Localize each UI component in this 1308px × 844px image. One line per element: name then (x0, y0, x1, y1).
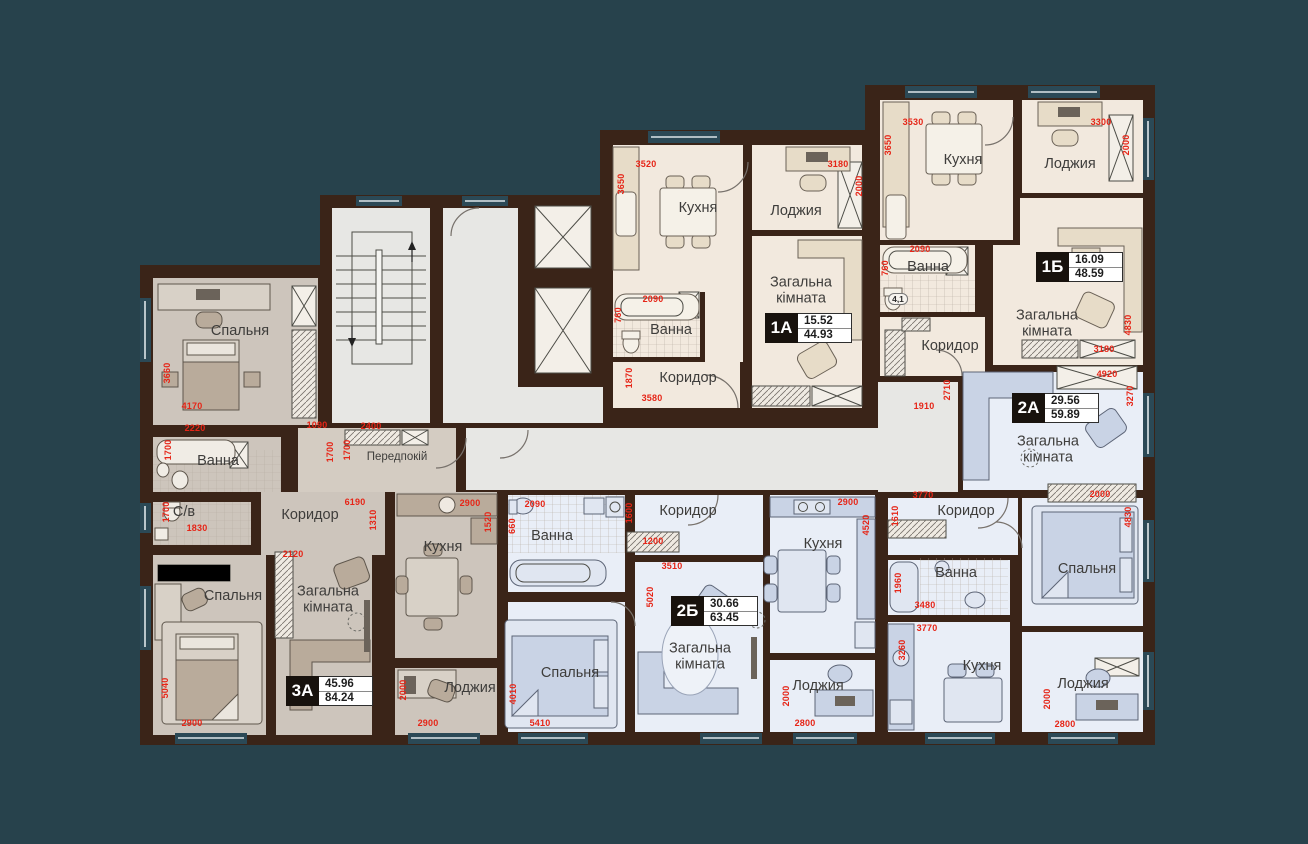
living-area: 30.66 (704, 597, 757, 612)
room-label: Кухня (963, 659, 1002, 675)
apartment-badge-2Б[interactable]: 2Б30.6663.45 (671, 596, 758, 626)
room-label: Коридор (281, 508, 338, 524)
apartment-badge-2А[interactable]: 2А29.5659.89 (1012, 393, 1099, 423)
dimension-label: 4520 (861, 515, 871, 536)
dimension-label: 3770 (917, 623, 938, 633)
dimension-label: 2000 (1042, 689, 1052, 710)
dimension-label: 3660 (162, 363, 172, 384)
room-label: Передпокій (367, 451, 428, 463)
apartment-code: 1Б (1036, 252, 1069, 282)
dimension-label: 2000 (1121, 135, 1131, 156)
room-label: Кухня (424, 540, 463, 556)
dimension-label: 1870 (624, 368, 634, 389)
room-label: Загальна кімната (297, 584, 359, 615)
apartment-areas: 30.6663.45 (704, 596, 758, 626)
dimension-label: 2900 (838, 497, 859, 507)
floor-plan: КухняЛоджияЗагальна кімнатаВаннаКоридорК… (0, 0, 1308, 844)
dimension-label: 3510 (662, 561, 683, 571)
dimension-label: 1310 (368, 510, 378, 531)
dimension-label: 1090 (307, 420, 328, 430)
dimension-label: 1700 (163, 440, 173, 461)
room-label: Лоджия (1057, 677, 1108, 693)
dimension-label: 4830 (1123, 507, 1133, 528)
room-label: Загальна кімната (1017, 434, 1079, 465)
dimension-label: 760 (613, 307, 623, 323)
dimension-label: 2220 (185, 423, 206, 433)
total-area: 59.89 (1045, 409, 1098, 423)
dimension-label: 1520 (483, 512, 493, 533)
apartment-areas: 15.5244.93 (798, 313, 852, 343)
room-label: Коридор (659, 504, 716, 520)
total-area: 44.93 (798, 329, 851, 343)
dimension-label: 1700 (325, 442, 335, 463)
dimension-label: 3180 (828, 159, 849, 169)
dimension-label: 4830 (1123, 315, 1133, 336)
dimension-label: 660 (507, 518, 517, 534)
dimension-label: 5410 (530, 718, 551, 728)
apartment-areas: 16.0948.59 (1069, 252, 1123, 282)
room-label: Спальня (211, 324, 269, 340)
dimension-label: 5020 (645, 587, 655, 608)
dimension-label: 1600 (624, 503, 634, 524)
dimension-label: 2000 (854, 176, 864, 197)
total-area: 48.59 (1069, 268, 1122, 282)
dimension-label: 3580 (642, 393, 663, 403)
dimension-label: 3270 (1125, 386, 1135, 407)
dimension-label: 2090 (643, 294, 664, 304)
dimension-label: 2090 (525, 499, 546, 509)
room-label: Загальна кімната (770, 275, 832, 306)
dimension-label: 2900 (418, 718, 439, 728)
room-label: Лоджия (1044, 157, 1095, 173)
dimension-label: 2900 (460, 498, 481, 508)
dimension-label: 3650 (883, 135, 893, 156)
apartment-areas: 29.5659.89 (1045, 393, 1099, 423)
room-label: Коридор (921, 339, 978, 355)
dimension-label: 2090 (910, 244, 931, 254)
apartment-badge-1А[interactable]: 1А15.5244.93 (765, 313, 852, 343)
dimension-label: 3260 (897, 640, 907, 661)
dimension-label: 2800 (795, 718, 816, 728)
dimension-label: 3480 (915, 600, 936, 610)
total-area: 63.45 (704, 612, 757, 626)
dimension-label: 1700 (342, 440, 352, 461)
dimension-label: 2800 (1055, 719, 1076, 729)
dimension-label: 760 (880, 260, 890, 276)
apartment-code: 2Б (671, 596, 704, 626)
dimension-label: 1910 (914, 401, 935, 411)
living-area: 16.09 (1069, 253, 1122, 268)
dimension-label: 5040 (160, 678, 170, 699)
dimension-label: 2000 (781, 686, 791, 707)
room-label: Загальна кімната (1016, 308, 1078, 339)
room-label: Ванна (935, 566, 977, 582)
dimension-label: 3650 (616, 174, 626, 195)
living-area: 15.52 (798, 314, 851, 329)
area-note: 4,1 (888, 293, 908, 305)
room-label: Коридор (659, 371, 716, 387)
apartment-code: 1А (765, 313, 798, 343)
apartment-badge-1Б[interactable]: 1Б16.0948.59 (1036, 252, 1123, 282)
room-label: Спальня (541, 666, 599, 682)
dimension-label: 1610 (890, 506, 900, 527)
room-label: Ванна (650, 323, 692, 339)
room-label: Ванна (197, 454, 239, 470)
dimension-label: 2710 (942, 380, 952, 401)
apartment-areas: 45.9684.24 (319, 676, 373, 706)
room-label: Спальня (1058, 562, 1116, 578)
room-label: Кухня (804, 537, 843, 553)
labels-overlay: КухняЛоджияЗагальна кімнатаВаннаКоридорК… (0, 0, 1308, 844)
dimension-label: 2000 (1090, 489, 1111, 499)
dimension-label: 2120 (283, 549, 304, 559)
room-label: Лоджия (444, 681, 495, 697)
dimension-label: 2900 (182, 718, 203, 728)
room-label: Ванна (531, 529, 573, 545)
dimension-label: 1960 (893, 573, 903, 594)
room-label: Лоджия (792, 679, 843, 695)
dimension-label: 4920 (1097, 369, 1118, 379)
dimension-label: 1830 (187, 523, 208, 533)
apartment-code: 3А (286, 676, 319, 706)
dimension-label: 1700 (161, 502, 171, 523)
room-label: Кухня (944, 153, 983, 169)
room-label: Лоджия (770, 204, 821, 220)
dimension-label: 4010 (508, 684, 518, 705)
dimension-label: 3300 (1091, 117, 1112, 127)
dimension-label: 3520 (636, 159, 657, 169)
room-label: Коридор (937, 504, 994, 520)
dimension-label: 3530 (903, 117, 924, 127)
apartment-badge-3А[interactable]: 3А45.9684.24 (286, 676, 373, 706)
room-label: С/в (173, 505, 195, 521)
total-area: 84.24 (319, 692, 372, 706)
living-area: 45.96 (319, 677, 372, 692)
dimension-label: 3180 (1094, 344, 1115, 354)
room-label: Ванна (907, 260, 949, 276)
apartment-code: 2А (1012, 393, 1045, 423)
dimension-label: 2000 (398, 680, 408, 701)
dimension-label: 2400 (361, 421, 382, 431)
dimension-label: 1200 (643, 536, 664, 546)
dimension-label: 4170 (182, 401, 203, 411)
living-area: 29.56 (1045, 394, 1098, 409)
dimension-label: 3770 (913, 490, 934, 500)
room-label: Спальня (204, 589, 262, 605)
room-label: Кухня (679, 201, 718, 217)
room-label: Загальна кімната (669, 641, 731, 672)
dimension-label: 6190 (345, 497, 366, 507)
